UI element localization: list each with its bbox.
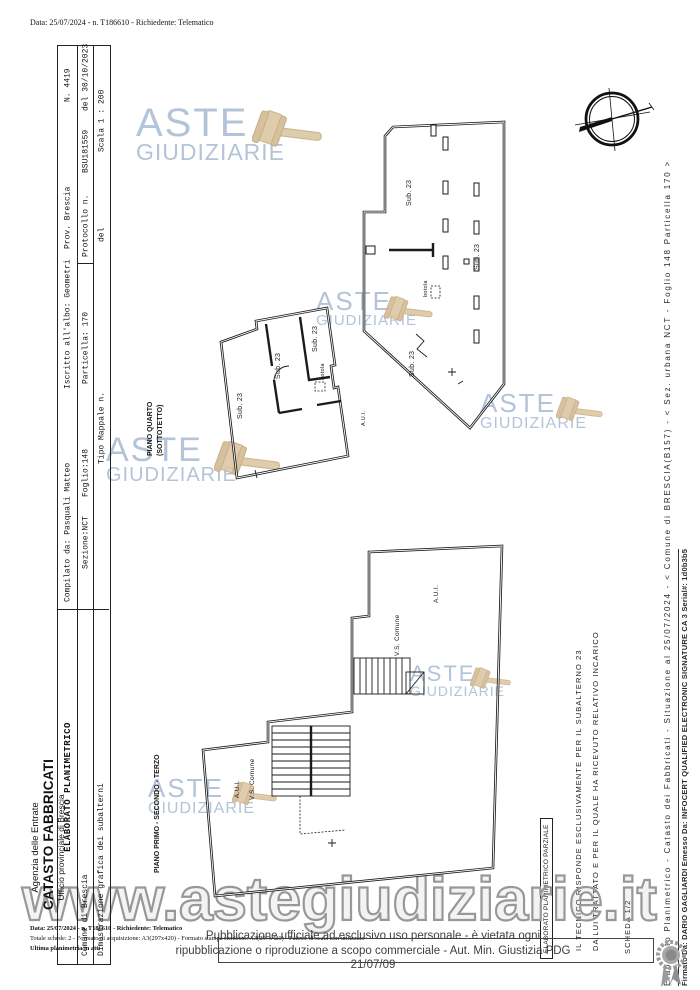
cadastral-document-page: Data: 25/07/2024 - n. T186610 - Richiede… [0, 0, 700, 990]
request-line: Data: 25/07/2024 - n. T186610 - Richiede… [30, 18, 214, 27]
botola-label: botola [423, 280, 429, 297]
plan-sottotetto-small [193, 298, 355, 488]
sub-label: Sub. 23 [409, 351, 416, 377]
protocol-date: del 30/10/2023 [81, 44, 90, 111]
tipo-mappale: Tipo Mappale n. [97, 392, 106, 464]
botola-label: botola [320, 363, 326, 380]
legal-line2: ripubblicazione o riproduzione a scopo c… [168, 944, 578, 973]
gavel-icon [556, 394, 604, 427]
registered-surveyor: Iscritto all'albo: Geometri [63, 259, 72, 389]
sub-label: Sub. 23 [406, 180, 413, 206]
parcel: Particella: 170 [81, 312, 90, 384]
floor-title-line: PIANO QUARTO [146, 402, 156, 456]
provincial-office: Ufficio provinciale di Brescia [56, 785, 66, 910]
del-label: del [97, 228, 106, 242]
floor-title-piano-primo: PIANO PRIMO - SECONDO - TERZO [153, 754, 163, 873]
legal-notice: Pubblicazione ufficiale ad esclusivo uso… [168, 929, 578, 973]
header-table-row3: Dimostrazione grafica dei subalterni Tip… [94, 46, 109, 964]
aui-label: A.U.I. [433, 585, 440, 603]
sub-label: Sub. 23 [312, 326, 319, 352]
aui-label: A.U.I. [361, 410, 367, 426]
compiled-by: Compilato da: Pasquali Matteo [63, 463, 72, 602]
legal-line1: Pubblicazione ufficiale ad esclusivo uso… [168, 929, 578, 944]
protocol-box: Protocollo n. BSU181559 del 30/10/2023 [78, 45, 93, 264]
aui-label: A.U.I. [234, 780, 241, 798]
margin-doc-info: Elaborato Planimetrico - Catasto dei Fab… [663, 160, 672, 986]
section-sheet: Sezione:NCT Foglio:148 [81, 449, 90, 569]
sub-label: Sub. 23 [275, 353, 282, 379]
catasto-title: CATASTO FABBRICATI [41, 785, 56, 910]
margin-signature: Firmato Da: DARIO GAGLIARDI Emesso Da: I… [678, 549, 689, 986]
floor-title-piano-quarto: PIANO QUARTO (SOTTOTETTO) [146, 402, 166, 456]
gavel-icon [252, 106, 324, 156]
floor-title-line: (SOTTOTETTO) [156, 402, 166, 456]
footer-request-line: Data: 25/07/2024 - n. T186610 - Richiede… [30, 925, 182, 932]
ribbon-seal-icon [648, 938, 698, 990]
header-table-row2: Comune di Brescia Sezione:NCT Foglio:148… [78, 46, 94, 964]
agency-block: Agenzia delle Entrate CATASTO FABBRICATI… [30, 785, 66, 910]
province: Prov. Brescia [63, 187, 72, 249]
sub-label: Sub. 23 [474, 244, 481, 270]
vs-comune-label: V.S. Comune [249, 759, 256, 800]
sub-label: Sub. 23 [237, 393, 244, 419]
license-number: N. 4419 [63, 68, 72, 102]
plan-lower-floors [193, 533, 511, 905]
compass-icon [570, 80, 658, 158]
scale: Scala 1 : 200 [97, 90, 106, 152]
municipality: Comune di Brescia [78, 609, 93, 964]
plan-sottotetto-large [352, 108, 517, 443]
vs-comune-label: V.S. Comune [394, 615, 401, 656]
footer-last-plan-line: Ultima planimetria in atti [30, 945, 100, 952]
protocol-number: BSU181559 [81, 130, 90, 173]
graphic-demo-label: Dimostrazione grafica dei subalterni [94, 609, 109, 964]
agency-name: Agenzia delle Entrate [30, 785, 41, 910]
protocol-label: Protocollo n. [81, 195, 90, 257]
